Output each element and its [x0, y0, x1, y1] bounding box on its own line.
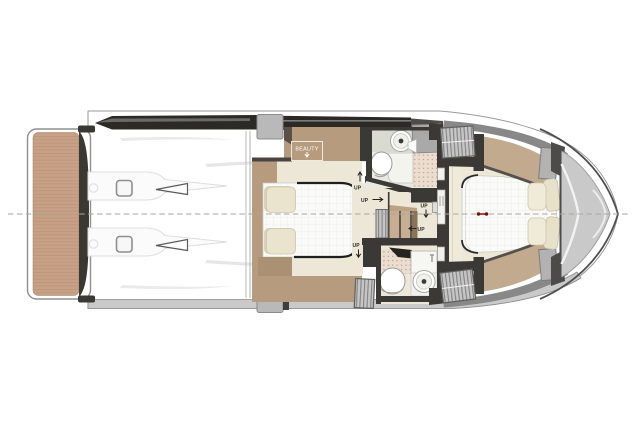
svg-text:UP: UP: [354, 186, 362, 192]
svg-text:UP: UP: [418, 227, 426, 233]
svg-text:UP: UP: [421, 204, 429, 210]
svg-text:BEAUTY: BEAUTY: [295, 147, 318, 153]
svg-text:UP: UP: [353, 243, 361, 249]
svg-text:UP: UP: [361, 198, 369, 204]
